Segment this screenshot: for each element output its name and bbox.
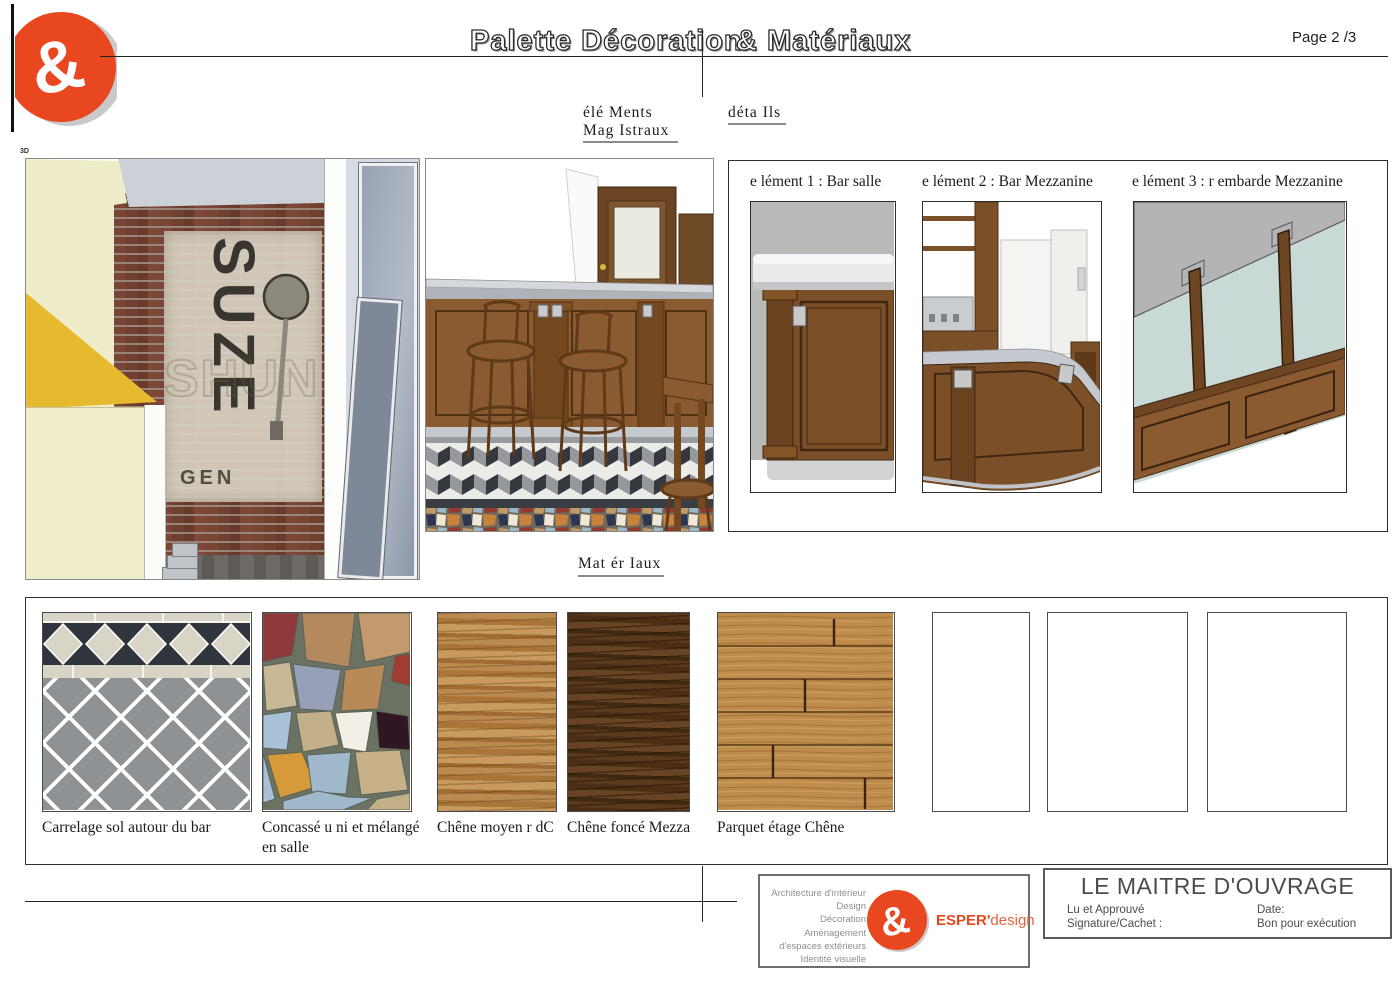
caption-parquet: Parquet étage Chêne [717,818,897,838]
wordmark-light: design [990,912,1034,929]
materials-underline [578,575,664,577]
approval-block: LE MAITRE D'OUVRAGE Lu et Approuvé Signa… [1043,868,1392,939]
approval-left-line2: Signature/Cachet : [1067,917,1162,931]
element1-label: e lément 1 : Bar salle [750,173,881,191]
header-rule [100,56,1388,57]
window-wall [346,159,419,579]
ghost-sign-bottom-text: GEN [180,467,235,490]
approval-right-line2: Bon pour exécution [1257,917,1356,931]
agency-wordmark: ESPER'design [936,912,1035,929]
cream-wall-lower [26,407,144,580]
element1-graphic [751,202,894,491]
caption-chene-moyen: Chêne moyen r dC [437,818,562,838]
service-item: Aménagement [766,927,866,940]
footer-divider [702,866,703,922]
ghost-sign: SUZE SHUN GEN [164,231,322,502]
element1-render [750,201,896,493]
label-elements-line2: Mag Istraux [583,122,669,140]
agency-block: Architecture d'intérieur Design Décorati… [758,874,1030,968]
footer-rule [25,901,737,902]
element3-graphic [1134,202,1345,491]
swatch-carrelage [42,612,252,812]
agency-ampersand-icon: & [866,888,930,954]
swatch-empty-2 [1047,612,1188,812]
palette-decoration-page: & Palette Décoration & Matériaux Page 2 … [0,0,1400,990]
service-item: Décoration [766,913,866,926]
agency-services: Architecture d'intérieur Design Décorati… [766,887,866,966]
label-elements-line1: élé Ments [583,104,653,122]
page-title-right: & Matériaux [736,25,911,58]
service-item: Architecture d'intérieur [766,887,866,900]
element2-label: e lément 2 : Bar Mezzanine [922,173,1093,191]
service-item: d'espaces extérieurs [766,940,866,953]
element3-render [1133,201,1347,493]
elements-underline [583,141,678,143]
swatch-empty-3 [1207,612,1347,812]
label-details: déta Ils [728,104,781,122]
label-materials: Mat ér Iaux [578,555,661,573]
approval-title: LE MAITRE D'OUVRAGE [1045,873,1390,900]
thermometer-graphic [256,271,320,481]
concasse-mosaic-graphic [263,613,410,810]
details-underline [728,123,786,125]
service-item: Design [766,900,866,913]
caption-chene-fonce: Chêne foncé Mezza [567,818,697,838]
wordmark-bold: ESPER' [936,912,990,929]
bar-room-render [425,158,714,532]
swatch-parquet [717,612,895,812]
approval-left-line1: Lu et Approuvé [1067,903,1144,917]
steps [162,543,198,579]
bar-room-graphic [426,159,713,531]
swatch-chene-moyen [437,612,557,812]
view-3d-tag: 3D [20,148,29,155]
swatch-chene-fonce [567,612,690,812]
carrelage-tile-graphic [43,613,250,810]
element3-label: e lément 3 : r embarde Mezzanine [1132,173,1343,191]
swatch-empty-1 [932,612,1030,812]
swatch-concasse [262,612,412,812]
approval-right-line1: Date: [1257,903,1285,917]
service-item: Identité visuelle [766,953,866,966]
element2-graphic [923,202,1100,491]
caption-concasse: Concassé u ni et mélangé en salle [262,818,422,858]
element2-render [922,201,1102,493]
facade-render: SUZE SHUN GEN [25,158,420,580]
ampersand-logo-icon: & [13,6,117,130]
page-number: Page 2 /3 [1292,29,1356,46]
header-divider [702,30,703,97]
parquet-graphic [718,613,893,810]
caption-carrelage: Carrelage sol autour du bar [42,818,252,838]
